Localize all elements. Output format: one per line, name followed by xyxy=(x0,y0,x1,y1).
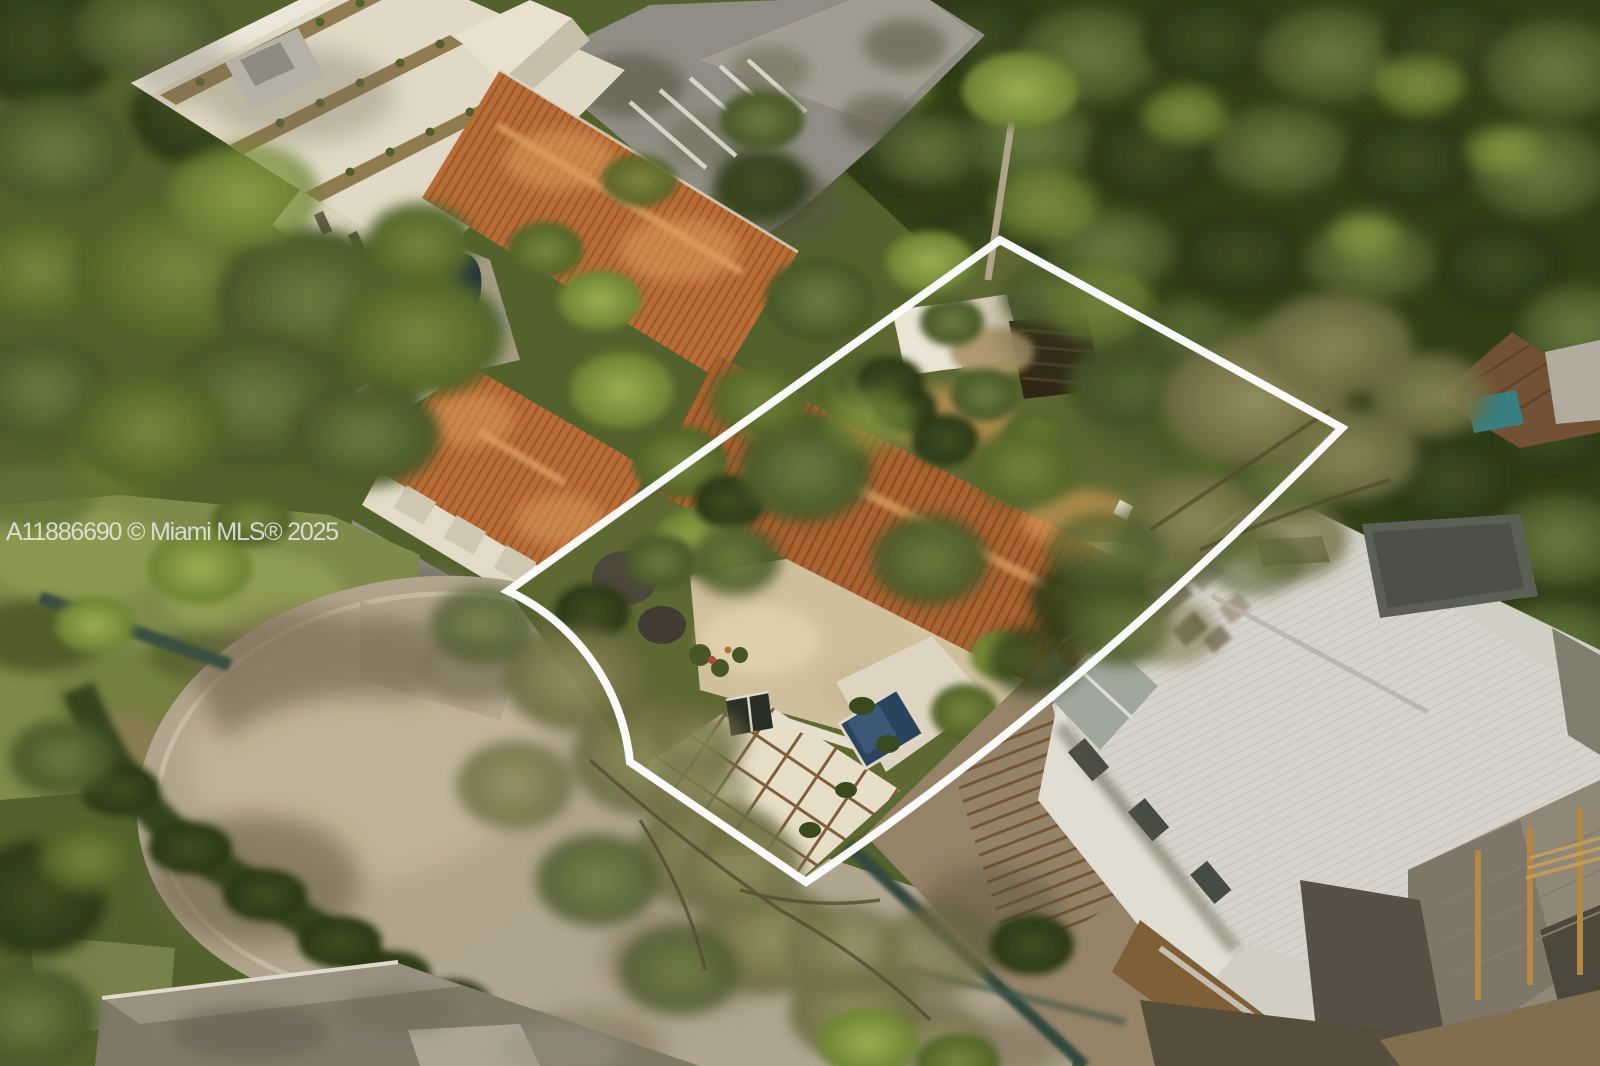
svg-text:A11886690 © Miami MLS® 2025: A11886690 © Miami MLS® 2025 xyxy=(6,518,338,546)
